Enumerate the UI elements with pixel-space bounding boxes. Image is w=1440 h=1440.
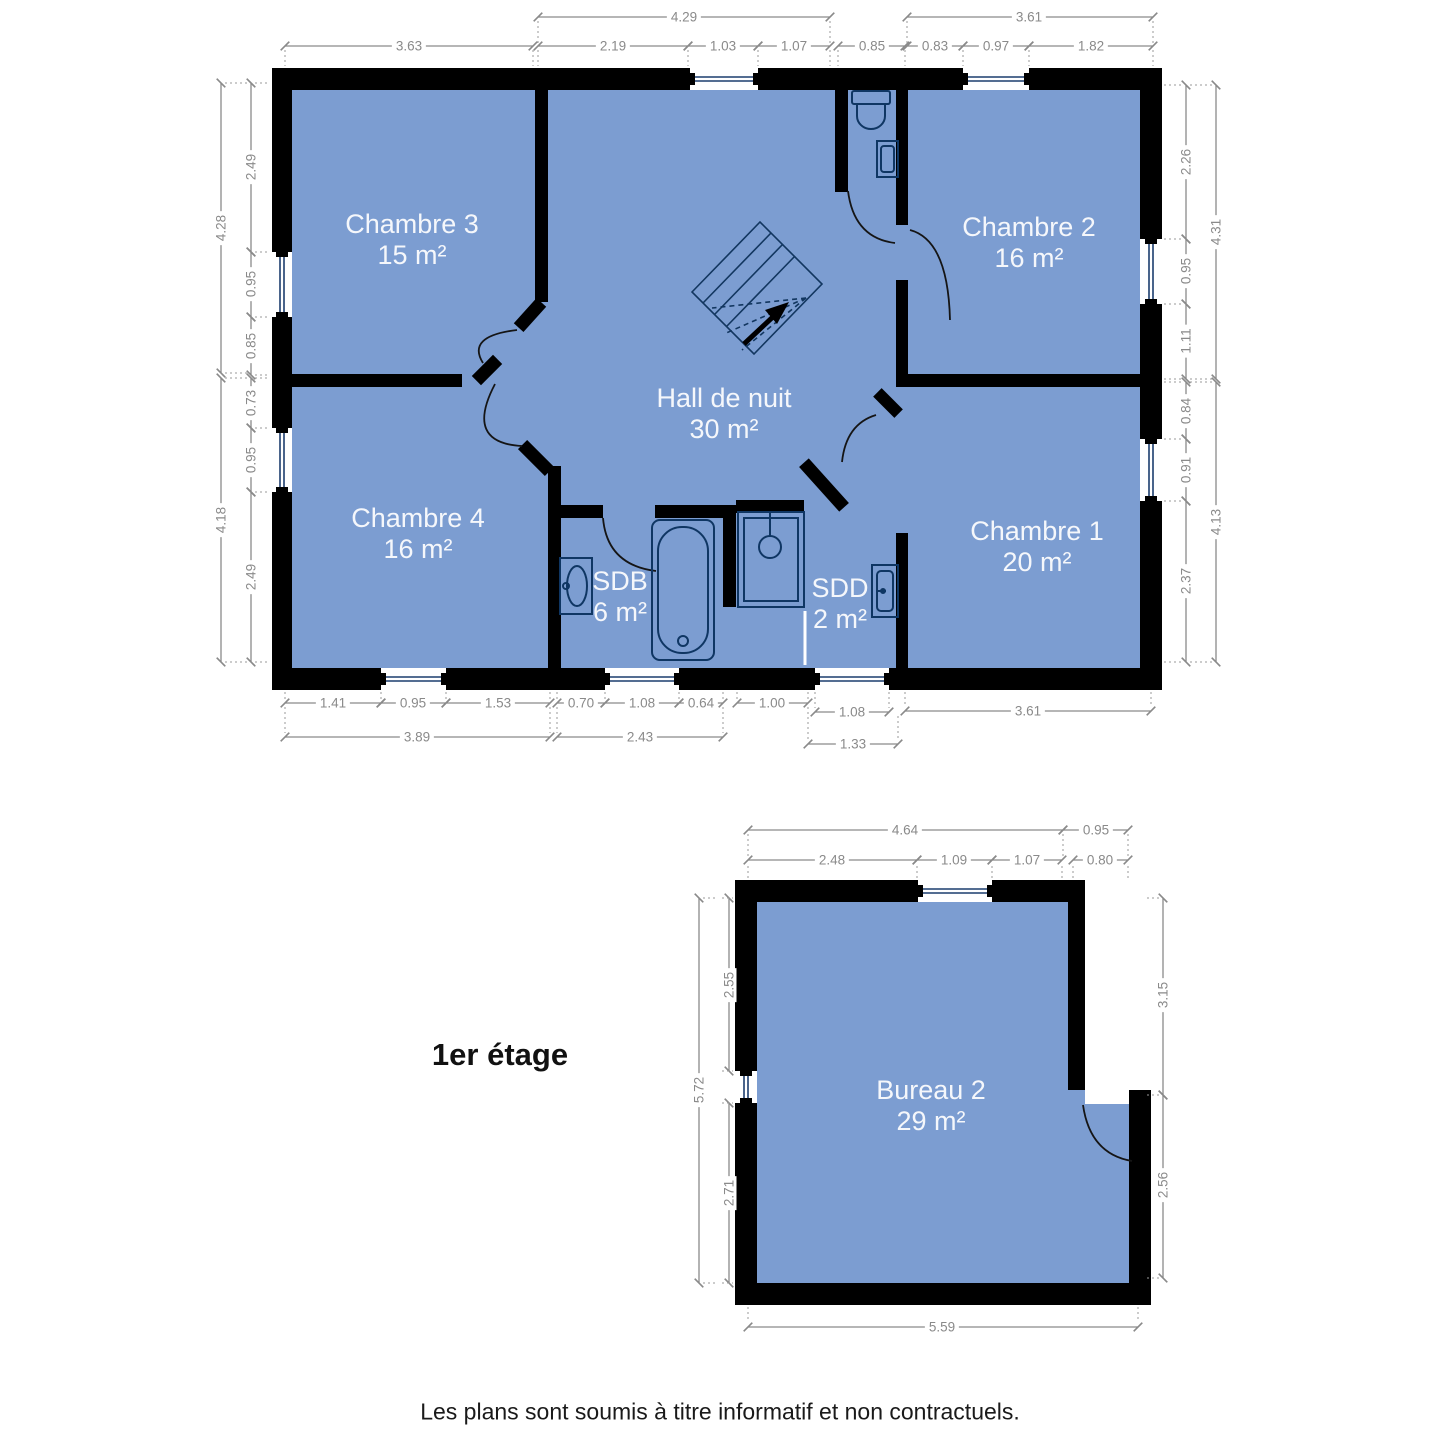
room-label-chambre-1: Chambre 1 20 m² <box>970 516 1104 578</box>
dim-label: 0.83 <box>918 39 952 54</box>
dim-label: 1.08 <box>835 705 869 720</box>
dim-label: 2.43 <box>623 730 657 745</box>
dim-label: 0.95 <box>244 443 259 477</box>
dim-label: 0.80 <box>1083 853 1117 868</box>
dim-label: 3.63 <box>392 39 426 54</box>
dim-label: 0.70 <box>564 696 598 711</box>
dim-label: 1.53 <box>481 696 515 711</box>
dim-label: 3.61 <box>1011 704 1045 719</box>
dim-label: 4.64 <box>888 823 922 838</box>
dim-label: 0.95 <box>1079 823 1113 838</box>
dim-label: 3.89 <box>400 730 434 745</box>
dim-label: 1.11 <box>1179 324 1194 357</box>
dim-label: 1.03 <box>706 39 740 54</box>
dim-label: 2.55 <box>722 968 737 1002</box>
dim-label: 1.33 <box>836 737 870 752</box>
dim-label: 2.37 <box>1179 564 1194 598</box>
dim-label: 2.48 <box>815 853 849 868</box>
dim-label: 2.26 <box>1179 145 1194 179</box>
room-label-sdd: SDD 2 m² <box>811 573 868 635</box>
dim-label: 4.31 <box>1209 215 1224 249</box>
room-label-sdb: SDB 6 m² <box>592 566 648 628</box>
disclaimer-text: Les plans sont soumis à titre informatif… <box>420 1399 1020 1426</box>
room-label-chambre-3: Chambre 3 15 m² <box>345 209 479 271</box>
dim-label: 1.08 <box>625 696 659 711</box>
dim-label: 4.29 <box>667 10 701 25</box>
dim-label: 4.28 <box>214 211 229 245</box>
floor-title: 1er étage <box>432 1037 568 1073</box>
bureau-doorway <box>1085 1090 1129 1104</box>
dim-label: 0.97 <box>979 39 1013 54</box>
dim-label: 0.85 <box>855 39 889 54</box>
dim-label: 0.91 <box>1179 453 1194 487</box>
dim-label: 1.07 <box>1010 853 1044 868</box>
dim-label: 1.09 <box>937 853 971 868</box>
dim-label: 0.73 <box>244 386 259 420</box>
dim-label: 3.61 <box>1012 10 1046 25</box>
dim-label: 0.95 <box>244 267 259 301</box>
dim-label: 2.49 <box>244 150 259 184</box>
dim-label: 5.72 <box>692 1073 707 1107</box>
room-label-bureau-2: Bureau 2 29 m² <box>876 1075 986 1137</box>
dim-label: 3.15 <box>1156 978 1171 1012</box>
dim-label: 1.00 <box>755 696 789 711</box>
dim-label: 2.49 <box>244 560 259 594</box>
dim-label: 1.82 <box>1074 39 1108 54</box>
dim-label: 1.41 <box>316 696 350 711</box>
dim-label: 5.59 <box>925 1320 959 1335</box>
dim-label: 4.13 <box>1209 505 1224 539</box>
dim-label: 1.07 <box>777 39 811 54</box>
dim-label: 0.84 <box>1179 394 1194 428</box>
dim-label: 0.95 <box>396 696 430 711</box>
room-label-chambre-4: Chambre 4 16 m² <box>351 503 485 565</box>
dim-label: 2.71 <box>722 1176 737 1210</box>
dim-label: 0.85 <box>244 329 259 363</box>
floor-plan-page: Chambre 3 15 m² Chambre 2 16 m² Chambre … <box>0 0 1440 1440</box>
room-label-chambre-2: Chambre 2 16 m² <box>962 212 1096 274</box>
dim-label: 0.64 <box>684 696 718 711</box>
dim-label: 0.95 <box>1179 254 1194 288</box>
dim-label: 2.19 <box>596 39 630 54</box>
dim-label: 2.56 <box>1156 1168 1171 1202</box>
room-label-hall-de-nuit: Hall de nuit 30 m² <box>656 383 791 445</box>
dim-label: 4.18 <box>214 503 229 537</box>
